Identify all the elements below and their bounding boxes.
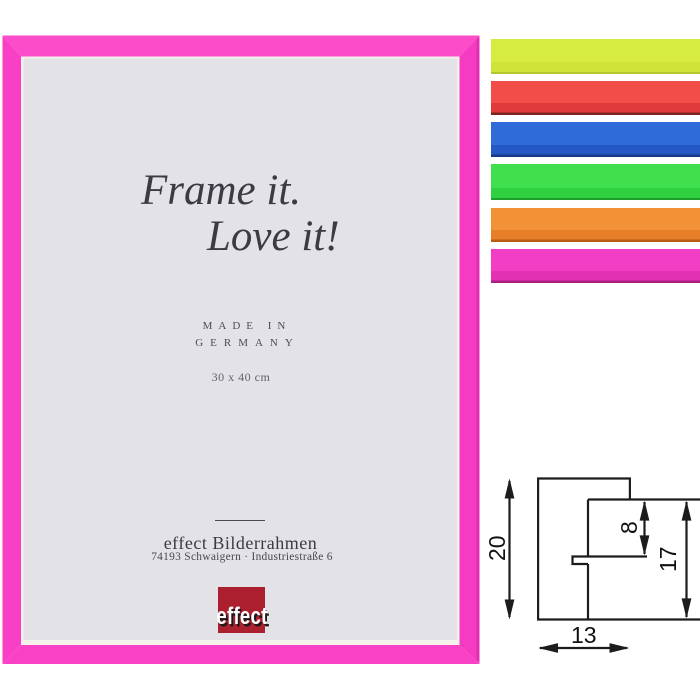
svg-text:17: 17 xyxy=(655,546,681,572)
svg-text:20: 20 xyxy=(484,535,510,561)
svg-text:8: 8 xyxy=(616,521,642,534)
svg-text:13: 13 xyxy=(571,622,597,648)
